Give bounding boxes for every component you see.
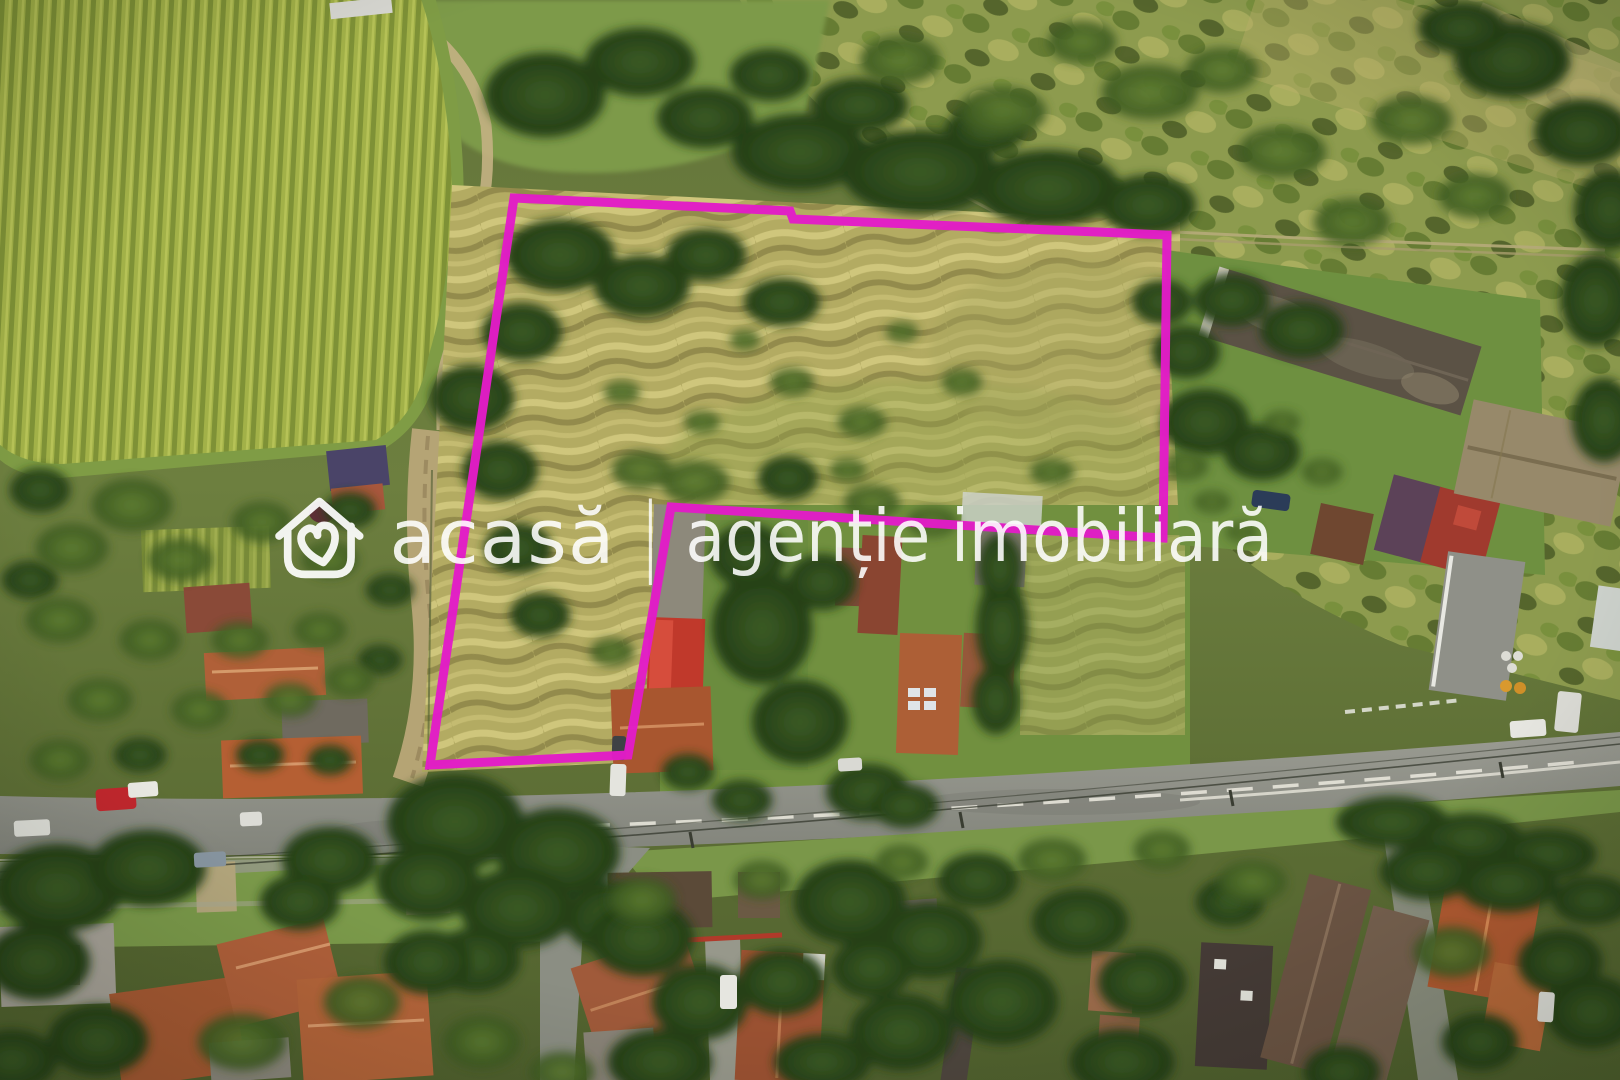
house-heart-logo-icon	[271, 488, 367, 584]
watermark-tagline: agenție imobiliară	[685, 494, 1273, 578]
aerial-photo: acasă | agenție imobiliară	[0, 0, 1620, 1080]
watermark-separator: |	[639, 486, 661, 586]
watermark: acasă | agenție imobiliară	[271, 488, 1338, 584]
watermark-brand: acasă	[389, 492, 615, 581]
